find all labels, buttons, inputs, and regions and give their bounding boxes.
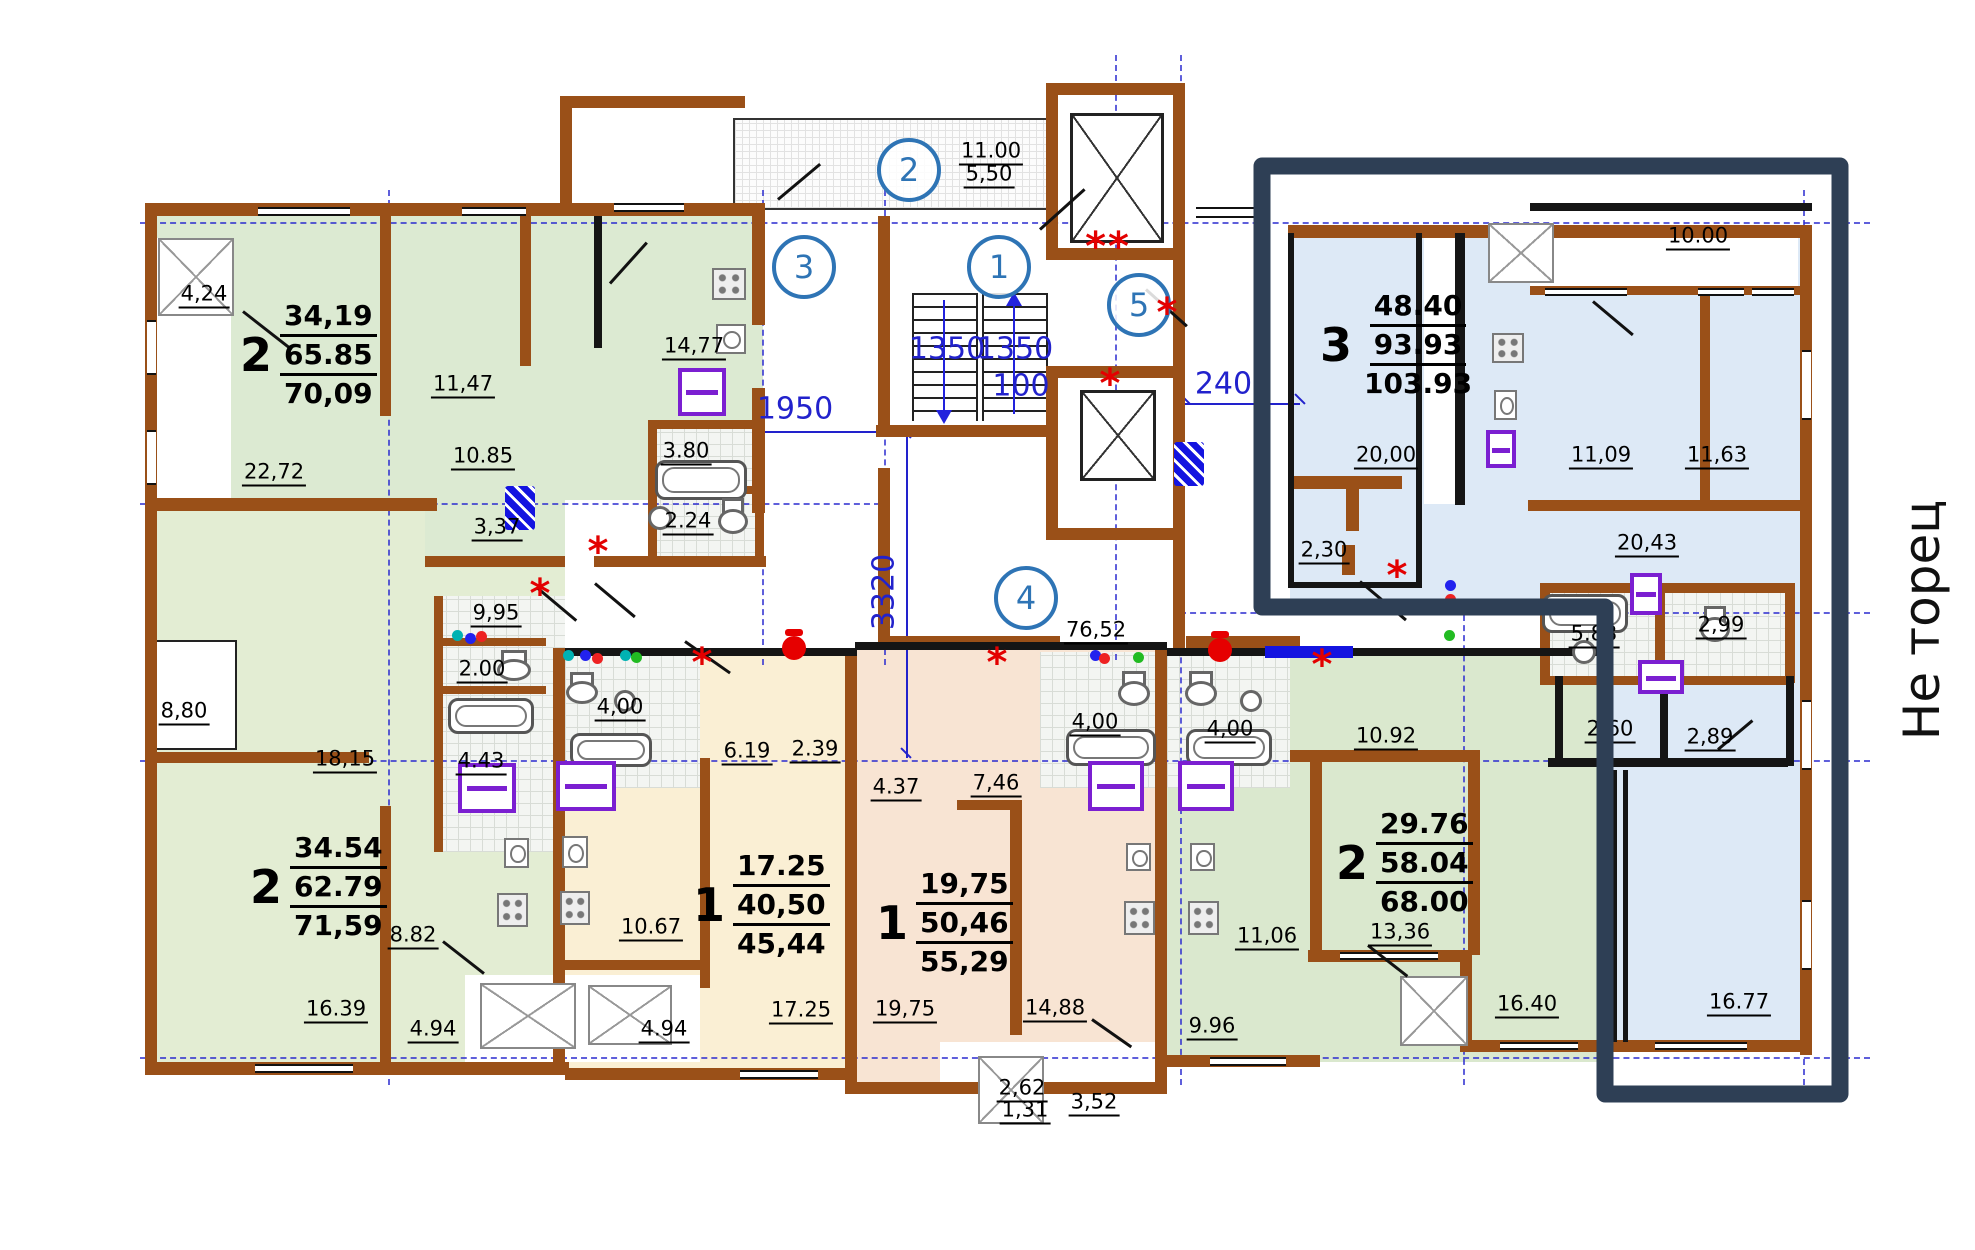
riser-dot	[620, 650, 631, 661]
window-symbol-purple	[1486, 430, 1516, 468]
wall	[1786, 676, 1794, 766]
wall	[1623, 770, 1628, 1042]
wall	[1346, 489, 1359, 531]
window	[1340, 952, 1438, 960]
dimension-line	[757, 431, 884, 433]
wall	[755, 420, 764, 565]
window	[258, 207, 350, 216]
wall	[845, 650, 857, 1090]
hydrant-icon	[1208, 638, 1232, 662]
room-area-label: 2,99	[1696, 613, 1747, 640]
riser-dot	[563, 650, 574, 661]
room-area-label: 9.96	[1187, 1014, 1238, 1041]
room-area-label: 3,37	[472, 515, 523, 542]
room-area-label: 16.40	[1495, 992, 1559, 1019]
room-area-label: 2,60	[1585, 717, 1636, 744]
wall	[520, 216, 531, 366]
stove-icon	[560, 891, 590, 925]
wall	[1548, 758, 1788, 767]
asterisk-mark: *	[1100, 361, 1123, 407]
room-area-label: 8.82	[388, 923, 439, 950]
room-area-label: 11,09	[1569, 443, 1633, 470]
wall	[1555, 676, 1563, 766]
riser-dot	[1133, 652, 1144, 663]
wall	[1290, 476, 1402, 489]
room-area-label: 4,00	[1205, 717, 1256, 744]
axis-bubble: 4	[994, 566, 1058, 630]
stove-icon	[712, 268, 746, 300]
riser-dot	[631, 652, 642, 663]
wall	[1528, 500, 1812, 511]
apartment-area-value: 34,19	[280, 298, 377, 337]
apartment-area-value: 93.93	[1370, 327, 1467, 366]
room-area-label: 17.25	[769, 998, 833, 1025]
wall	[434, 686, 546, 694]
wall	[145, 511, 157, 1075]
room-area-label: 10.92	[1354, 724, 1418, 751]
window	[147, 430, 156, 485]
room-area-label: 5.83	[1569, 622, 1620, 649]
bathtub-icon	[655, 460, 747, 500]
room-area-label: 10.85	[451, 444, 515, 471]
stairs-arrow-down	[936, 410, 952, 424]
room-area-label: 18,15	[313, 747, 377, 774]
riser-dot	[580, 650, 591, 661]
room-area-label: 4.94	[408, 1017, 459, 1044]
apartment-area-value: 65.85	[280, 337, 377, 376]
apartment-type: 2	[1336, 836, 1368, 890]
window-symbol-purple	[1088, 761, 1144, 811]
apartment-type: 1	[876, 896, 908, 950]
apartment-label: 234.5462.7971,59	[250, 830, 387, 944]
stove-icon	[497, 893, 528, 927]
room-area-label: 2.24	[663, 509, 714, 536]
room-area-label: 16.77	[1707, 990, 1771, 1017]
riser-dot	[476, 631, 487, 642]
room-area-label: 11,63	[1685, 443, 1749, 470]
window-lintel-blue	[1265, 646, 1353, 658]
apartment-area-value: 45,44	[733, 926, 830, 962]
balcony-glazing	[1400, 976, 1468, 1046]
apartment-area-value: 70,09	[280, 376, 377, 412]
room-area-label: 11,06	[1235, 924, 1299, 951]
toilet-icon	[1185, 671, 1211, 700]
dimension-label: 2400	[1195, 367, 1271, 402]
axis-bubble: 2	[877, 138, 941, 202]
window-symbol-purple	[1630, 573, 1662, 615]
dimension-label: 1350	[909, 332, 985, 367]
window	[1802, 700, 1811, 770]
window	[147, 320, 156, 375]
wall	[560, 96, 572, 208]
white-area	[1530, 238, 1798, 288]
room-area-label: 4.37	[871, 775, 922, 802]
window	[740, 1070, 818, 1079]
wall	[1785, 583, 1795, 683]
kitchen-sink-icon	[1190, 843, 1215, 871]
room-area-label: 3,52	[1069, 1090, 1120, 1117]
wall	[1288, 233, 1294, 588]
wall	[145, 498, 437, 511]
wall	[1046, 83, 1058, 260]
sink-icon	[1240, 690, 1262, 712]
window	[1698, 288, 1744, 296]
riser-dot	[1445, 594, 1456, 605]
apartment-type: 1	[693, 878, 725, 932]
window	[1545, 288, 1627, 296]
asterisk-mark: *	[1312, 642, 1335, 688]
apartment-area-value: 40,50	[733, 887, 830, 926]
wall	[1530, 203, 1812, 211]
wall	[1046, 528, 1185, 540]
apartment-area-value: 103.93	[1360, 366, 1476, 402]
asterisk-mark: *	[1157, 290, 1180, 336]
wall	[648, 420, 762, 429]
wall	[594, 556, 766, 567]
room-area-label: 19,75	[873, 997, 937, 1024]
stove-icon	[1124, 901, 1155, 935]
window-symbol-purple	[1638, 660, 1684, 694]
riser-dot	[452, 630, 463, 641]
room-area-label: 2,30	[1299, 538, 1350, 565]
wall	[752, 203, 765, 325]
wall	[594, 216, 602, 348]
floor-plan: Не торец 4,2411,4722,7210.8514,773.802.2…	[0, 0, 1975, 1250]
wall	[878, 216, 890, 428]
room-area-label: 4,00	[1070, 710, 1121, 737]
dimension-label: 3320	[867, 554, 902, 630]
riser-dot	[465, 633, 476, 644]
room-area-label: 4.43	[456, 749, 507, 776]
axis-bubble: 1	[967, 235, 1031, 299]
apartment-area-value: 50,46	[916, 905, 1013, 944]
axis-bubble: 3	[772, 235, 836, 299]
wall	[1290, 750, 1472, 762]
balcony-glazing	[480, 983, 576, 1049]
room-area-label: 20,00	[1354, 443, 1418, 470]
wall	[876, 425, 1052, 437]
wall	[565, 960, 705, 970]
riser-dot	[592, 653, 603, 664]
apartment-area-value: 29.76	[1376, 806, 1473, 845]
dimension-label: 1350	[977, 332, 1053, 367]
window	[255, 1064, 353, 1073]
window	[1802, 900, 1811, 970]
room-area-label: 76,52	[1064, 618, 1128, 645]
toilet-icon	[1118, 671, 1144, 700]
asterisk-mark: **	[1085, 224, 1131, 270]
apartment-label: 119,7550,4655,29	[876, 866, 1013, 980]
wall	[1700, 295, 1710, 505]
apartment-area-value: 58.04	[1376, 845, 1473, 884]
apartment-area-value: 71,59	[290, 908, 387, 944]
room-area-label: 2.00	[457, 657, 508, 684]
riser-dot	[1445, 580, 1456, 591]
window	[1196, 207, 1254, 218]
apartment-area-value: 17.25	[733, 848, 830, 887]
wall	[425, 556, 565, 567]
room-area-label: 20,43	[1615, 531, 1679, 558]
window	[1655, 1042, 1747, 1050]
apartment-area-value: 68.00	[1376, 884, 1473, 920]
apartment-type: 2	[250, 860, 282, 914]
dimension-label: 100	[992, 369, 1049, 404]
kitchen-sink-icon	[1126, 843, 1151, 871]
apartment-area-value: 62.79	[290, 869, 387, 908]
loggia-8-80	[147, 640, 237, 750]
room-area-label: 9,95	[471, 601, 522, 628]
room-area-label: 2.39	[790, 737, 841, 764]
kitchen-sink-icon	[1494, 390, 1517, 420]
window-symbol-purple	[1178, 761, 1234, 811]
apartment-area-value: 48.40	[1370, 288, 1467, 327]
room-area-label: 2,89	[1685, 725, 1736, 752]
room-area-label: 6.19	[722, 739, 773, 766]
window	[614, 203, 684, 212]
apartment-area-value: 34.54	[290, 830, 387, 869]
axis-line	[1180, 612, 1870, 614]
room-area-label: 3.80	[661, 439, 712, 466]
side-note-label: Не торец	[1893, 500, 1951, 741]
apartment-label: 117.2540,5045,44	[693, 848, 830, 962]
wall	[380, 216, 391, 416]
wall	[1173, 540, 1185, 648]
room-area-label: 4,24	[179, 282, 230, 309]
room-area-label: 14,77	[662, 334, 726, 361]
asterisk-mark: *	[987, 640, 1010, 686]
window-symbol-blue	[1174, 442, 1204, 486]
stove-icon	[1188, 901, 1219, 935]
apartment-label: 348.4093.93103.93	[1320, 288, 1476, 402]
room-area-label: 11,47	[431, 372, 495, 399]
wall	[1155, 644, 1167, 1089]
kitchen-sink-icon	[562, 836, 588, 868]
window	[1752, 288, 1794, 296]
kitchen-sink-icon	[504, 838, 529, 868]
apartment-label: 229.7658.0468.00	[1336, 806, 1473, 920]
wall	[1046, 83, 1185, 95]
wall	[434, 596, 443, 852]
door-swing	[594, 582, 636, 618]
room-area-label: 10.67	[619, 915, 683, 942]
room-area-label: 8,80	[159, 699, 210, 726]
window	[462, 207, 526, 216]
asterisk-mark: *	[530, 571, 553, 617]
wall	[1540, 583, 1790, 593]
wall	[1310, 750, 1322, 955]
wall	[560, 96, 745, 108]
window	[1500, 1042, 1578, 1050]
apartment-label: 234,1965.8570,09	[240, 298, 377, 412]
stove-icon	[1492, 333, 1524, 363]
room-area-label: 4,00	[595, 695, 646, 722]
wall	[1173, 83, 1185, 260]
room-area-label: 16.39	[304, 997, 368, 1024]
window	[1802, 350, 1811, 420]
dimension-line	[1185, 403, 1300, 405]
room-area-label: 22,72	[242, 460, 306, 487]
room-area-label: 1,31	[1000, 1098, 1051, 1125]
wall	[145, 1062, 569, 1075]
wall	[957, 800, 1022, 810]
apartment-type: 3	[1320, 318, 1352, 372]
asterisk-mark: *	[588, 529, 611, 575]
bathtub-icon	[448, 698, 534, 734]
riser-dot	[1099, 653, 1110, 664]
room-area-label: 7,46	[971, 771, 1022, 798]
window-symbol-purple	[678, 368, 726, 416]
wall	[1167, 648, 1610, 656]
room-area-label: 13,36	[1368, 920, 1432, 947]
axis-line	[140, 222, 1870, 224]
wall	[434, 638, 546, 646]
asterisk-mark: *	[692, 640, 715, 686]
dimension-label: 1950	[757, 392, 833, 427]
wall	[1416, 233, 1422, 588]
window-symbol-purple	[556, 761, 616, 811]
apartment-area-value: 55,29	[916, 944, 1013, 980]
hydrant-icon	[782, 636, 806, 660]
riser-dot	[1444, 630, 1455, 641]
window	[1210, 1057, 1286, 1066]
wall	[1612, 770, 1617, 1042]
balcony-glazing	[1488, 223, 1554, 283]
dimension-line	[906, 437, 908, 758]
room-area-label: 14,88	[1023, 996, 1087, 1023]
apartment-type: 2	[240, 328, 272, 382]
toilet-icon	[566, 672, 592, 698]
asterisk-mark: *	[1387, 553, 1410, 599]
toilet-icon	[718, 498, 742, 528]
room-area-label: 4.94	[639, 1017, 690, 1044]
apartment-area-value: 19,75	[916, 866, 1013, 905]
room-area-label: 5,50	[964, 162, 1015, 189]
room-area-label: 10.00	[1666, 224, 1730, 251]
